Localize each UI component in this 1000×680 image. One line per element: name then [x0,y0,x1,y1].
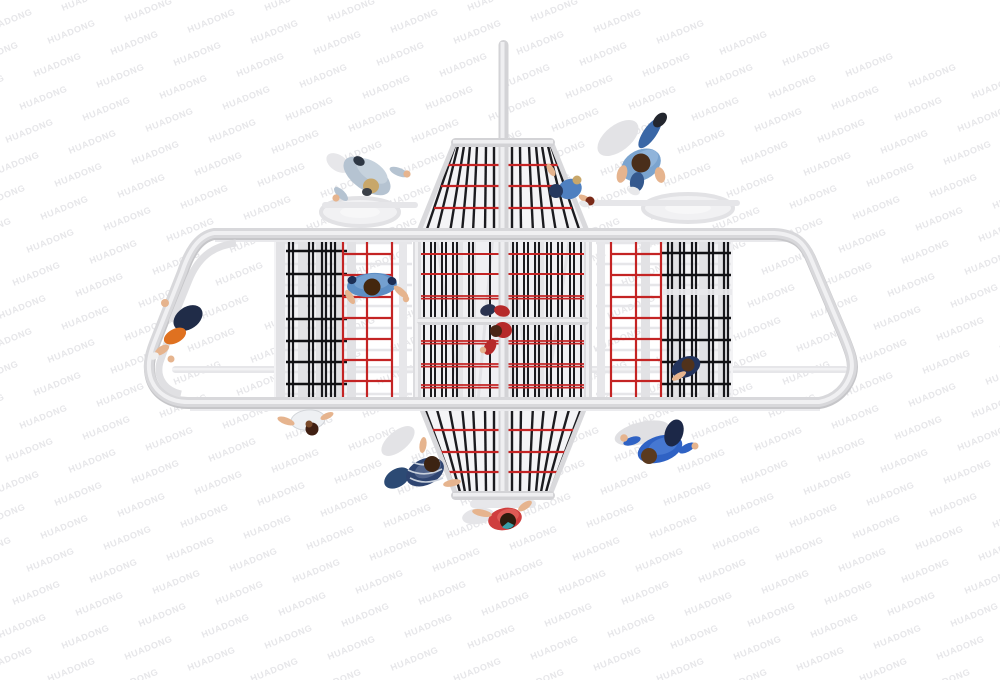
svg-text:HUADONG: HUADONG [844,51,895,79]
svg-text:HUADONG: HUADONG [718,667,769,680]
svg-text:HUADONG: HUADONG [914,205,965,233]
svg-text:HUADONG: HUADONG [102,205,153,233]
svg-text:HUADONG: HUADONG [74,271,125,299]
svg-text:HUADONG: HUADONG [193,469,244,497]
svg-text:HUADONG: HUADONG [158,73,209,101]
svg-text:HUADONG: HUADONG [389,7,440,35]
svg-text:HUADONG: HUADONG [900,557,951,585]
svg-text:HUADONG: HUADONG [529,634,580,662]
svg-text:HUADONG: HUADONG [949,601,1000,629]
svg-text:HUADONG: HUADONG [326,0,377,24]
svg-text:HUADONG: HUADONG [886,590,937,618]
svg-text:HUADONG: HUADONG [942,458,993,486]
svg-text:HUADONG: HUADONG [935,634,986,662]
svg-text:HUADONG: HUADONG [291,557,342,585]
svg-text:HUADONG: HUADONG [109,667,160,680]
svg-text:HUADONG: HUADONG [515,667,566,680]
svg-text:HUADONG: HUADONG [851,513,902,541]
svg-text:HUADONG: HUADONG [312,667,363,680]
svg-text:HUADONG: HUADONG [704,62,755,90]
svg-text:HUADONG: HUADONG [935,315,986,343]
svg-text:HUADONG: HUADONG [662,480,713,508]
svg-text:HUADONG: HUADONG [452,18,503,46]
svg-text:HUADONG: HUADONG [340,601,391,629]
svg-text:HUADONG: HUADONG [438,51,489,79]
svg-text:HUADONG: HUADONG [557,568,608,596]
svg-text:HUADONG: HUADONG [235,51,286,79]
svg-text:HUADONG: HUADONG [746,282,797,310]
svg-text:HUADONG: HUADONG [802,150,853,178]
svg-text:HUADONG: HUADONG [585,502,636,530]
svg-text:HUADONG: HUADONG [781,40,832,68]
svg-text:HUADONG: HUADONG [690,414,741,442]
svg-text:HUADONG: HUADONG [151,568,202,596]
svg-text:HUADONG: HUADONG [25,546,76,574]
svg-text:HUADONG: HUADONG [655,656,706,680]
svg-text:HUADONG: HUADONG [480,590,531,618]
svg-text:HUADONG: HUADONG [0,293,48,321]
svg-text:HUADONG: HUADONG [0,645,34,673]
svg-text:HUADONG: HUADONG [312,29,363,57]
svg-text:HUADONG: HUADONG [46,337,97,365]
svg-text:HUADONG: HUADONG [732,315,783,343]
svg-text:HUADONG: HUADONG [11,260,62,288]
svg-text:HUADONG: HUADONG [60,0,111,13]
svg-text:HUADONG: HUADONG [95,381,146,409]
svg-text:HUADONG: HUADONG [900,238,951,266]
svg-text:HUADONG: HUADONG [774,535,825,563]
svg-text:HUADONG: HUADONG [32,51,83,79]
svg-text:HUADONG: HUADONG [466,623,517,651]
svg-text:HUADONG: HUADONG [179,183,230,211]
svg-text:HUADONG: HUADONG [606,612,657,640]
svg-text:HUADONG: HUADONG [200,293,251,321]
svg-text:HUADONG: HUADONG [186,326,237,354]
svg-text:HUADONG: HUADONG [200,612,251,640]
svg-text:HUADONG: HUADONG [578,40,629,68]
svg-text:HUADONG: HUADONG [851,194,902,222]
svg-text:HUADONG: HUADONG [718,29,769,57]
svg-text:HUADONG: HUADONG [872,304,923,332]
svg-text:HUADONG: HUADONG [907,62,958,90]
svg-text:HUADONG: HUADONG [991,183,1000,211]
svg-text:HUADONG: HUADONG [249,656,300,680]
svg-text:HUADONG: HUADONG [39,194,90,222]
svg-text:HUADONG: HUADONG [669,623,720,651]
svg-text:HUADONG: HUADONG [116,491,167,519]
svg-text:HUADONG: HUADONG [886,271,937,299]
svg-text:HUADONG: HUADONG [550,106,601,134]
svg-text:HUADONG: HUADONG [928,172,979,200]
svg-text:HUADONG: HUADONG [326,634,377,662]
svg-text:HUADONG: HUADONG [81,414,132,442]
svg-text:HUADONG: HUADONG [123,634,174,662]
svg-text:HUADONG: HUADONG [592,7,643,35]
svg-text:HUADONG: HUADONG [823,260,874,288]
svg-text:HUADONG: HUADONG [319,491,370,519]
svg-text:HUADONG: HUADONG [270,447,321,475]
svg-text:HUADONG: HUADONG [529,0,580,24]
svg-text:HUADONG: HUADONG [74,590,125,618]
svg-text:HUADONG: HUADONG [802,469,853,497]
svg-text:HUADONG: HUADONG [249,18,300,46]
svg-text:HUADONG: HUADONG [571,535,622,563]
svg-text:HUADONG: HUADONG [46,656,97,680]
svg-text:HUADONG: HUADONG [0,7,34,35]
svg-text:HUADONG: HUADONG [599,469,650,497]
svg-text:HUADONG: HUADONG [725,491,776,519]
svg-text:HUADONG: HUADONG [683,590,734,618]
svg-text:HUADONG: HUADONG [816,436,867,464]
svg-text:HUADONG: HUADONG [662,161,713,189]
svg-text:HUADONG: HUADONG [172,40,223,68]
svg-text:HUADONG: HUADONG [739,139,790,167]
svg-text:HUADONG: HUADONG [228,546,279,574]
svg-text:HUADONG: HUADONG [60,304,111,332]
svg-text:HUADONG: HUADONG [109,29,160,57]
svg-text:HUADONG: HUADONG [0,150,41,178]
svg-text:HUADONG: HUADONG [207,436,258,464]
svg-text:HUADONG: HUADONG [389,645,440,673]
svg-text:HUADONG: HUADONG [893,414,944,442]
svg-text:HUADONG: HUADONG [984,359,1000,387]
svg-text:HUADONG: HUADONG [53,480,104,508]
svg-text:HUADONG: HUADONG [788,183,839,211]
svg-text:HUADONG: HUADONG [837,227,888,255]
svg-text:HUADONG: HUADONG [130,458,181,486]
svg-text:HUADONG: HUADONG [179,502,230,530]
svg-text:HUADONG: HUADONG [242,194,293,222]
svg-text:HUADONG: HUADONG [809,612,860,640]
svg-text:HUADONG: HUADONG [53,161,104,189]
svg-text:HUADONG: HUADONG [284,95,335,123]
svg-text:HUADONG: HUADONG [0,0,48,2]
svg-text:HUADONG: HUADONG [403,612,454,640]
svg-text:HUADONG: HUADONG [641,51,692,79]
svg-text:HUADONG: HUADONG [620,579,671,607]
svg-text:HUADONG: HUADONG [865,161,916,189]
svg-text:HUADONG: HUADONG [242,513,293,541]
svg-text:HUADONG: HUADONG [0,40,20,68]
svg-text:HUADONG: HUADONG [382,502,433,530]
svg-text:HUADONG: HUADONG [942,139,993,167]
svg-text:HUADONG: HUADONG [879,128,930,156]
svg-text:HUADONG: HUADONG [732,634,783,662]
svg-text:HUADONG: HUADONG [921,348,972,376]
svg-text:HUADONG: HUADONG [95,62,146,90]
svg-text:HUADONG: HUADONG [116,172,167,200]
svg-text:HUADONG: HUADONG [403,0,454,2]
svg-text:HUADONG: HUADONG [949,282,1000,310]
svg-text:HUADONG: HUADONG [879,447,930,475]
svg-text:HUADONG: HUADONG [494,557,545,585]
svg-text:HUADONG: HUADONG [200,0,251,2]
svg-text:HUADONG: HUADONG [130,139,181,167]
svg-text:HUADONG: HUADONG [0,359,20,387]
svg-text:HUADONG: HUADONG [690,95,741,123]
svg-text:HUADONG: HUADONG [88,238,139,266]
svg-text:HUADONG: HUADONG [60,623,111,651]
svg-text:HUADONG: HUADONG [746,601,797,629]
svg-text:HUADONG: HUADONG [543,601,594,629]
svg-text:HUADONG: HUADONG [858,656,909,680]
svg-text:HUADONG: HUADONG [39,513,90,541]
svg-text:HUADONG: HUADONG [102,524,153,552]
svg-text:HUADONG: HUADONG [18,403,69,431]
svg-text:HUADONG: HUADONG [88,557,139,585]
svg-text:HUADONG: HUADONG [32,370,83,398]
svg-text:HUADONG: HUADONG [977,216,1000,244]
svg-text:HUADONG: HUADONG [0,183,27,211]
svg-text:HUADONG: HUADONG [795,645,846,673]
svg-text:HUADONG: HUADONG [970,392,1000,420]
svg-text:HUADONG: HUADONG [144,425,195,453]
svg-text:HUADONG: HUADONG [956,106,1000,134]
svg-text:HUADONG: HUADONG [417,579,468,607]
svg-text:HUADONG: HUADONG [46,18,97,46]
svg-text:HUADONG: HUADONG [207,117,258,145]
svg-text:HUADONG: HUADONG [256,480,307,508]
svg-text:HUADONG: HUADONG [970,73,1000,101]
svg-text:HUADONG: HUADONG [354,568,405,596]
svg-text:HUADONG: HUADONG [676,128,727,156]
svg-text:HUADONG: HUADONG [655,18,706,46]
svg-text:HUADONG: HUADONG [760,568,811,596]
svg-text:HUADONG: HUADONG [4,117,55,145]
svg-text:HUADONG: HUADONG [487,95,538,123]
svg-text:HUADONG: HUADONG [753,106,804,134]
svg-text:HUADONG: HUADONG [193,150,244,178]
svg-text:HUADONG: HUADONG [627,84,678,112]
svg-text:HUADONG: HUADONG [858,337,909,365]
svg-text:HUADONG: HUADONG [375,40,426,68]
svg-text:HUADONG: HUADONG [214,579,265,607]
svg-text:HUADONG: HUADONG [977,535,1000,563]
svg-text:HUADONG: HUADONG [837,546,888,574]
svg-text:HUADONG: HUADONG [18,84,69,112]
svg-text:HUADONG: HUADONG [0,535,13,563]
svg-text:HUADONG: HUADONG [893,95,944,123]
svg-text:HUADONG: HUADONG [270,128,321,156]
svg-text:HUADONG: HUADONG [263,623,314,651]
svg-text:HUADONG: HUADONG [368,535,419,563]
svg-text:HUADONG: HUADONG [81,95,132,123]
svg-text:HUADONG: HUADONG [0,502,27,530]
svg-text:HUADONG: HUADONG [991,502,1000,530]
svg-text:HUADONG: HUADONG [872,623,923,651]
svg-text:HUADONG: HUADONG [11,579,62,607]
svg-text:HUADONG: HUADONG [648,513,699,541]
svg-text:HUADONG: HUADONG [501,62,552,90]
svg-text:HUADONG: HUADONG [907,381,958,409]
svg-text:HUADONG: HUADONG [788,502,839,530]
svg-text:HUADONG: HUADONG [4,436,55,464]
svg-text:HUADONG: HUADONG [0,612,48,640]
svg-text:HUADONG: HUADONG [830,84,881,112]
svg-text:HUADONG: HUADONG [0,392,6,420]
svg-text:HUADONG: HUADONG [277,590,328,618]
svg-text:HUADONG: HUADONG [711,524,762,552]
svg-text:HUADONG: HUADONG [0,326,34,354]
svg-text:HUADONG: HUADONG [956,425,1000,453]
svg-text:HUADONG: HUADONG [921,667,972,680]
svg-text:HUADONG: HUADONG [214,260,265,288]
svg-text:HUADONG: HUADONG [263,0,314,13]
svg-text:HUADONG: HUADONG [914,524,965,552]
svg-text:HUADONG: HUADONG [354,249,405,277]
svg-text:HUADONG: HUADONG [123,0,174,24]
svg-text:HUADONG: HUADONG [585,183,636,211]
svg-text:HUADONG: HUADONG [823,579,874,607]
svg-text:HUADONG: HUADONG [256,161,307,189]
svg-text:HUADONG: HUADONG [697,557,748,585]
svg-text:HUADONG: HUADONG [508,524,559,552]
svg-text:HUADONG: HUADONG [816,117,867,145]
svg-text:HUADONG: HUADONG [347,106,398,134]
svg-text:HUADONG: HUADONG [963,249,1000,277]
svg-text:HUADONG: HUADONG [186,645,237,673]
svg-text:HUADONG: HUADONG [67,128,118,156]
svg-text:HUADONG: HUADONG [25,227,76,255]
svg-text:HUADONG: HUADONG [963,568,1000,596]
svg-text:HUADONG: HUADONG [186,7,237,35]
svg-text:HUADONG: HUADONG [0,216,13,244]
svg-text:HUADONG: HUADONG [739,458,790,486]
svg-text:HUADONG: HUADONG [221,84,272,112]
svg-text:HUADONG: HUADONG [165,535,216,563]
svg-text:HUADONG: HUADONG [144,106,195,134]
svg-text:HUADONG: HUADONG [305,524,356,552]
svg-text:HUADONG: HUADONG [431,546,482,574]
svg-text:HUADONG: HUADONG [830,403,881,431]
svg-text:HUADONG: HUADONG [725,172,776,200]
svg-text:HUADONG: HUADONG [298,62,349,90]
svg-text:HUADONG: HUADONG [515,29,566,57]
svg-text:HUADONG: HUADONG [361,73,412,101]
svg-text:HUADONG: HUADONG [424,84,475,112]
svg-text:HUADONG: HUADONG [865,480,916,508]
svg-text:HUADONG: HUADONG [634,546,685,574]
svg-text:HUADONG: HUADONG [333,458,384,486]
svg-text:HUADONG: HUADONG [67,447,118,475]
svg-text:HUADONG: HUADONG [137,601,188,629]
svg-text:HUADONG: HUADONG [0,469,41,497]
svg-text:HUADONG: HUADONG [564,73,615,101]
svg-text:HUADONG: HUADONG [466,0,517,13]
svg-text:HUADONG: HUADONG [452,656,503,680]
svg-text:HUADONG: HUADONG [753,425,804,453]
svg-text:HUADONG: HUADONG [767,73,818,101]
svg-text:HUADONG: HUADONG [592,645,643,673]
svg-text:HUADONG: HUADONG [928,491,979,519]
svg-text:HUADONG: HUADONG [0,73,6,101]
